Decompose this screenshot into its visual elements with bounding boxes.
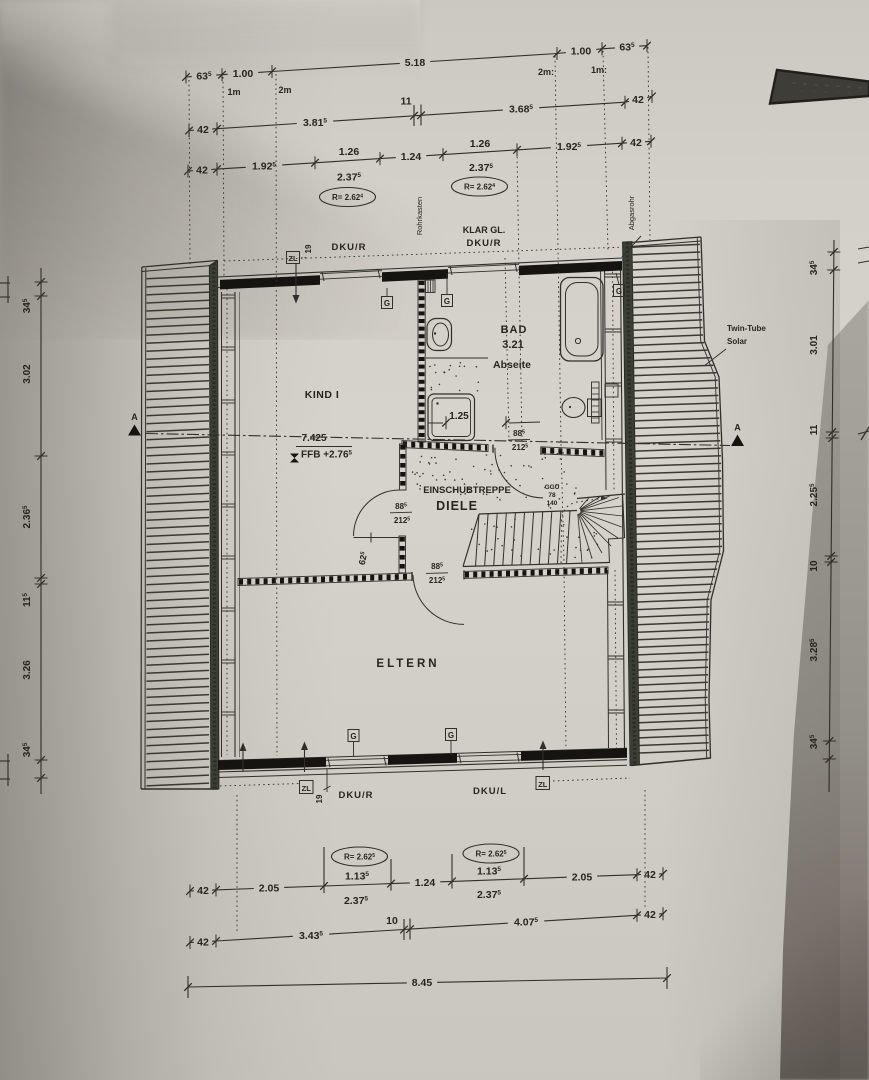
svg-text:EINSCHUBTREPPE: EINSCHUBTREPPE (423, 485, 511, 496)
svg-text:2.375: 2.375 (344, 895, 368, 907)
svg-text:1.24: 1.24 (415, 877, 436, 889)
svg-text:G: G (448, 731, 454, 740)
svg-text:345: 345 (809, 260, 820, 275)
svg-text:R= 2.624: R= 2.624 (464, 183, 495, 192)
svg-text:DIELE: DIELE (436, 499, 478, 513)
svg-text:FFB +2.765: FFB +2.765 (301, 449, 353, 460)
svg-text:42: 42 (196, 165, 208, 177)
svg-text:78: 78 (548, 492, 556, 499)
svg-text:10: 10 (386, 915, 398, 927)
svg-text:2.365: 2.365 (22, 505, 33, 528)
svg-text:2.375: 2.375 (337, 172, 361, 184)
svg-text:635: 635 (619, 42, 635, 54)
svg-text:2125: 2125 (394, 516, 410, 525)
svg-text:ELTERN: ELTERN (376, 658, 439, 670)
svg-text:42: 42 (197, 885, 209, 897)
svg-text:G: G (350, 732, 356, 741)
svg-text:345: 345 (22, 742, 33, 757)
svg-text:2.255: 2.255 (809, 483, 820, 506)
svg-text:4.075: 4.075 (514, 917, 538, 929)
svg-text:42: 42 (197, 936, 209, 948)
svg-text:2m:: 2m: (538, 67, 554, 77)
svg-text:885: 885 (395, 502, 407, 511)
svg-text:R= 2.624: R= 2.624 (332, 193, 363, 202)
svg-text:1m: 1m (227, 87, 240, 97)
svg-text:10: 10 (809, 560, 820, 572)
svg-text:1.26: 1.26 (339, 146, 360, 158)
svg-text:Solar: Solar (727, 337, 747, 346)
svg-text:345: 345 (809, 734, 820, 749)
svg-text:885: 885 (431, 562, 443, 571)
svg-text:42: 42 (197, 124, 209, 136)
svg-text:1.24: 1.24 (401, 151, 422, 163)
svg-text:19: 19 (315, 794, 324, 803)
svg-text:8.45: 8.45 (412, 977, 433, 989)
svg-text:7.425: 7.425 (301, 433, 326, 444)
svg-text:42: 42 (630, 137, 642, 149)
svg-text:625: 625 (357, 551, 370, 566)
svg-text:A: A (734, 423, 741, 433)
svg-text:2.375: 2.375 (469, 162, 493, 174)
svg-text:2125: 2125 (429, 576, 445, 585)
svg-text:3.01: 3.01 (809, 335, 820, 355)
svg-text:1m:: 1m: (591, 65, 607, 75)
svg-text:3.435: 3.435 (299, 930, 323, 942)
svg-text:2.375: 2.375 (477, 889, 501, 901)
svg-text:G: G (444, 297, 450, 306)
svg-text:11: 11 (400, 95, 411, 107)
svg-text:5.18: 5.18 (405, 57, 426, 69)
svg-text:2m: 2m (278, 85, 291, 95)
svg-text:3.02: 3.02 (22, 364, 33, 384)
svg-text:1.925: 1.925 (252, 161, 276, 173)
svg-text:2125: 2125 (512, 443, 528, 452)
svg-text:1.135: 1.135 (345, 870, 369, 882)
svg-text:G: G (616, 287, 622, 296)
svg-text:2.05: 2.05 (572, 871, 593, 883)
svg-text:DKU/R: DKU/R (331, 242, 366, 253)
svg-text:DKU/R: DKU/R (466, 238, 501, 249)
svg-text:Twin-Tube: Twin-Tube (727, 324, 766, 333)
svg-text:3.26: 3.26 (22, 660, 33, 680)
svg-text:Rohrkasten: Rohrkasten (415, 197, 424, 235)
svg-text:3.285: 3.285 (809, 638, 820, 661)
svg-text:ZL: ZL (538, 780, 548, 789)
svg-text:A: A (131, 412, 138, 422)
svg-text:42: 42 (644, 869, 656, 881)
svg-text:G: G (384, 299, 390, 308)
svg-text:42: 42 (644, 909, 656, 921)
svg-text:1.135: 1.135 (477, 866, 501, 878)
svg-text:BAD: BAD (501, 324, 528, 336)
svg-text:2.05: 2.05 (259, 883, 280, 895)
svg-text:Abgasrohr: Abgasrohr (627, 195, 636, 230)
svg-text:1.26: 1.26 (470, 138, 491, 150)
svg-text:1.00: 1.00 (233, 68, 254, 80)
svg-text:345: 345 (22, 298, 33, 313)
svg-text:1.925: 1.925 (557, 141, 581, 153)
svg-text:DKU/L: DKU/L (473, 786, 507, 797)
svg-text:3.685: 3.685 (509, 104, 533, 116)
svg-text:ZL: ZL (302, 784, 312, 793)
svg-text:KLAR GL.: KLAR GL. (463, 225, 506, 235)
svg-text:115: 115 (22, 592, 33, 607)
svg-text:19: 19 (304, 244, 313, 253)
svg-text:DKU/R: DKU/R (338, 790, 373, 801)
svg-text:KIND I: KIND I (305, 389, 340, 401)
svg-text:885: 885 (513, 429, 525, 438)
svg-text:Abseite: Abseite (493, 359, 531, 371)
svg-text:R= 2.625: R= 2.625 (475, 850, 506, 859)
svg-text:42: 42 (632, 94, 644, 106)
svg-text:635: 635 (196, 70, 212, 82)
svg-text:1.25: 1.25 (449, 411, 469, 422)
svg-text:1.00: 1.00 (571, 46, 592, 58)
svg-text:R= 2.625: R= 2.625 (344, 853, 375, 862)
svg-text:3.815: 3.815 (303, 117, 327, 129)
svg-text:11: 11 (809, 424, 820, 435)
